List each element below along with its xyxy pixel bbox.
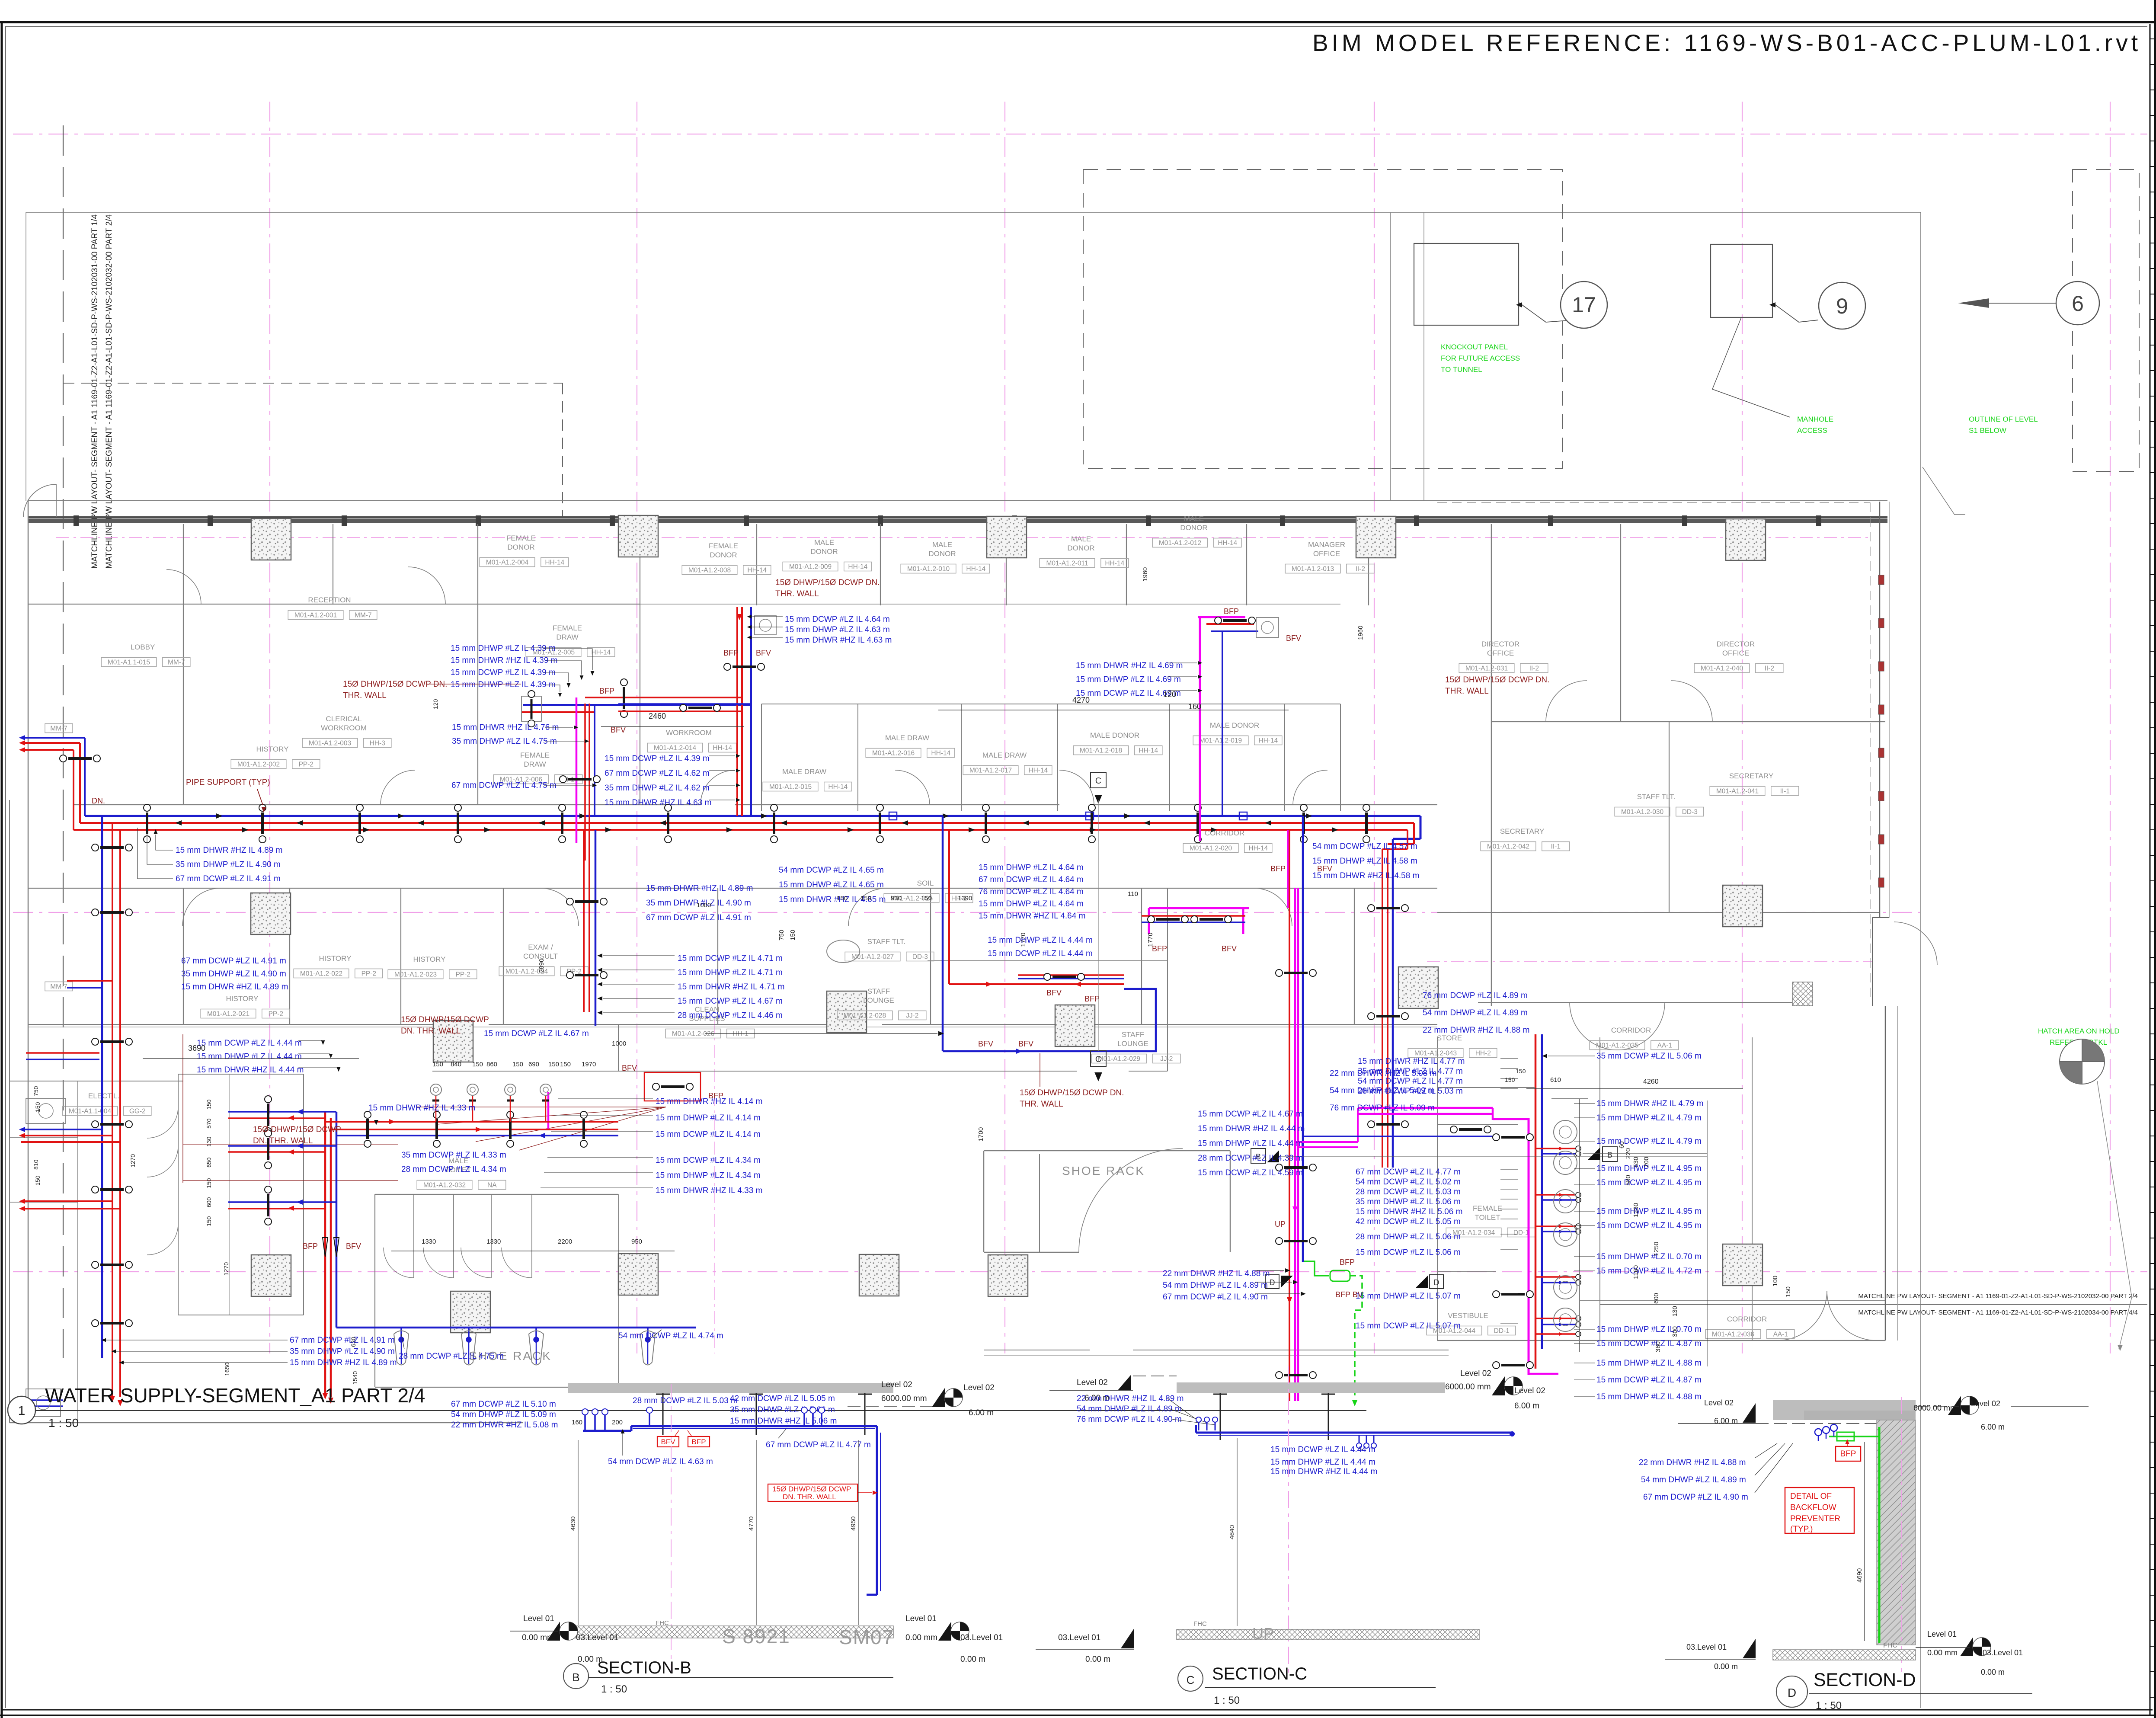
svg-text:STAFF: STAFF <box>867 987 890 995</box>
svg-text:15 mm DCWP #LZ IL 5.07 m: 15 mm DCWP #LZ IL 5.07 m <box>1356 1321 1461 1331</box>
svg-text:1770: 1770 <box>1020 933 1027 947</box>
svg-text:ELECT'L.: ELECT'L. <box>88 1092 119 1100</box>
svg-text:2890: 2890 <box>538 959 545 973</box>
svg-text:SECTION-D: SECTION-D <box>1814 1670 1916 1690</box>
svg-text:C: C <box>1095 776 1101 786</box>
svg-text:28 mm DCWP #LZ IL 5.03 m: 28 mm DCWP #LZ IL 5.03 m <box>1356 1187 1461 1197</box>
svg-text:BFP: BFP <box>1270 864 1286 873</box>
svg-text:HH-14: HH-14 <box>1139 747 1158 754</box>
svg-text:OFFICE: OFFICE <box>1722 649 1749 657</box>
svg-text:1700: 1700 <box>977 1127 985 1142</box>
svg-text:15 mm DHWP #LZ IL 4.79 m: 15 mm DHWP #LZ IL 4.79 m <box>1596 1113 1702 1123</box>
svg-text:4690: 4690 <box>1856 1568 1863 1583</box>
svg-text:MM-7: MM-7 <box>50 725 67 732</box>
svg-text:1540: 1540 <box>352 1371 358 1385</box>
svg-text:DONOR: DONOR <box>810 547 838 556</box>
svg-text:150: 150 <box>205 1099 212 1110</box>
svg-text:300: 300 <box>1671 1326 1679 1337</box>
svg-text:15 mm DCWP #LZ IL 5.06 m: 15 mm DCWP #LZ IL 5.06 m <box>1356 1248 1461 1257</box>
svg-text:M01-A1.2-015: M01-A1.2-015 <box>769 783 812 790</box>
svg-text:M01-A1.2-013: M01-A1.2-013 <box>1292 565 1334 573</box>
svg-text:RECEPTION: RECEPTION <box>308 596 351 604</box>
svg-text:15 mm DHWR #HZ IL 4.89 m: 15 mm DHWR #HZ IL 4.89 m <box>181 982 288 992</box>
svg-text:15 mm DCWP #LZ IL 4.67 m: 15 mm DCWP #LZ IL 4.67 m <box>484 1029 589 1038</box>
svg-text:6.00 m: 6.00 m <box>1514 1401 1539 1411</box>
svg-text:15Ø DHWP/15Ø DCWP: 15Ø DHWP/15Ø DCWP <box>253 1125 341 1134</box>
svg-text:35 mm DHWP #LZ IL 4.77 m: 35 mm DHWP #LZ IL 4.77 m <box>1358 1067 1463 1076</box>
svg-text:HH-14: HH-14 <box>747 566 767 574</box>
svg-text:KNOCKOUT PANEL: KNOCKOUT PANEL <box>1441 343 1508 351</box>
svg-text:1770: 1770 <box>1147 933 1154 947</box>
svg-text:35 mm DHWP #LZ IL 4.90 m: 35 mm DHWP #LZ IL 4.90 m <box>176 860 281 869</box>
svg-text:930: 930 <box>891 895 902 902</box>
svg-text:54 mm DHWP #LZ IL 5.09 m: 54 mm DHWP #LZ IL 5.09 m <box>451 1410 556 1419</box>
svg-text:67 mm DCWP #LZ IL 4.91 m: 67 mm DCWP #LZ IL 4.91 m <box>290 1336 395 1345</box>
svg-text:BFV: BFV <box>622 1064 637 1072</box>
svg-text:Level 01: Level 01 <box>1927 1630 1957 1638</box>
svg-text:4640: 4640 <box>1228 1525 1236 1539</box>
svg-text:MALE: MALE <box>1184 515 1204 523</box>
svg-text:SECRETARY: SECRETARY <box>1500 827 1544 835</box>
svg-text:PP-2: PP-2 <box>299 761 313 768</box>
svg-text:15 mm DHWR #HZ IL 4.14 m: 15 mm DHWR #HZ IL 4.14 m <box>656 1097 762 1106</box>
svg-text:76 mm DCWP #LZ IL 5.09 m: 76 mm DCWP #LZ IL 5.09 m <box>1330 1104 1435 1113</box>
svg-text:THR. WALL: THR. WALL <box>1020 1100 1063 1109</box>
svg-text:C: C <box>1187 1673 1195 1686</box>
svg-text:15 mm DHWP #LZ IL 4.64 m: 15 mm DHWP #LZ IL 4.64 m <box>979 899 1084 909</box>
svg-text:15Ø DHWP/15Ø DCWP DN.: 15Ø DHWP/15Ø DCWP DN. <box>1445 675 1549 685</box>
svg-text:DD-1: DD-1 <box>1494 1327 1510 1334</box>
svg-text:15 mm DHWR #HZ IL 4.64 m: 15 mm DHWR #HZ IL 4.64 m <box>979 912 1085 921</box>
svg-text:1960: 1960 <box>1142 567 1149 582</box>
svg-text:42 mm DCWP #LZ IL 5.05 m: 42 mm DCWP #LZ IL 5.05 m <box>730 1394 835 1403</box>
svg-text:15 mm DHWP #LZ IL 4.44 m: 15 mm DHWP #LZ IL 4.44 m <box>1198 1139 1303 1148</box>
svg-text:22 mm DHWR #HZ IL 5.08 m: 22 mm DHWR #HZ IL 5.08 m <box>451 1420 558 1430</box>
svg-text:FOR FUTURE ACCESS: FOR FUTURE ACCESS <box>1441 354 1520 362</box>
svg-text:200: 200 <box>612 1419 623 1426</box>
svg-text:MALE DONOR: MALE DONOR <box>1090 731 1139 739</box>
svg-text:150: 150 <box>789 930 797 941</box>
svg-text:35 mm DHWP #LZ IL 4.90 m: 35 mm DHWP #LZ IL 4.90 m <box>290 1347 395 1356</box>
svg-text:FHC: FHC <box>1883 1642 1897 1649</box>
svg-text:15 mm DHWR #HZ IL 5.06 m: 15 mm DHWR #HZ IL 5.06 m <box>1356 1207 1462 1216</box>
svg-text:76 mm DCWP #LZ IL 4.64 m: 76 mm DCWP #LZ IL 4.64 m <box>979 887 1084 896</box>
svg-text:PP-2: PP-2 <box>456 971 470 978</box>
svg-text:Level 02: Level 02 <box>1971 1399 2000 1408</box>
svg-text:15 mm DHWR #HZ IL 4.44 m: 15 mm DHWR #HZ IL 4.44 m <box>1270 1467 1377 1476</box>
svg-text:SM07: SM07 <box>839 1626 894 1648</box>
svg-text:570: 570 <box>205 1118 212 1129</box>
svg-text:ACCESS: ACCESS <box>1797 426 1827 435</box>
svg-text:FEMALE: FEMALE <box>520 751 550 759</box>
svg-text:M01-A1.2-022: M01-A1.2-022 <box>300 970 342 977</box>
svg-text:2200: 2200 <box>558 1238 572 1245</box>
svg-text:DN. THR. WALL: DN. THR. WALL <box>401 1027 461 1036</box>
svg-text:54 mm DHWP #LZ IL 4.89 m: 54 mm DHWP #LZ IL 4.89 m <box>1077 1404 1182 1414</box>
svg-text:6000.00 mm: 6000.00 mm <box>881 1394 927 1403</box>
svg-text:1000: 1000 <box>697 902 711 909</box>
svg-text:SECTION-B: SECTION-B <box>597 1658 691 1677</box>
svg-text:15 mm DHWP #LZ IL 4.65 m: 15 mm DHWP #LZ IL 4.65 m <box>779 880 884 889</box>
svg-text:3690: 3690 <box>188 1044 205 1053</box>
svg-text:35 mm DHWP #LZ IL 4.90 m: 35 mm DHWP #LZ IL 4.90 m <box>181 969 286 979</box>
svg-text:690: 690 <box>528 1061 539 1068</box>
svg-text:(TYP.): (TYP.) <box>1790 1525 1813 1534</box>
svg-text:1330: 1330 <box>486 1238 501 1245</box>
svg-text:1160: 1160 <box>1632 1265 1640 1279</box>
svg-text:28 mm DCWP #LZ IL 4.39 m: 28 mm DCWP #LZ IL 4.39 m <box>1198 1154 1303 1163</box>
svg-text:MM-7: MM-7 <box>50 983 67 990</box>
svg-text:BFP: BFP <box>1840 1449 1856 1459</box>
svg-text:15Ø DHWP/15Ø DCWP: 15Ø DHWP/15Ø DCWP <box>772 1485 851 1493</box>
svg-text:67 mm DCWP #LZ IL 4.90 m: 67 mm DCWP #LZ IL 4.90 m <box>1643 1493 1748 1502</box>
svg-text:HISTORY: HISTORY <box>319 954 352 963</box>
svg-text:610: 610 <box>1550 1076 1561 1084</box>
svg-text:BIM MODEL REFERENCE: 1169-WS-B: BIM MODEL REFERENCE: 1169-WS-B01-ACC-PLU… <box>1312 29 2141 56</box>
svg-text:M01-A1.2-021: M01-A1.2-021 <box>207 1010 250 1017</box>
svg-text:BFV: BFV <box>1286 634 1301 643</box>
svg-text:15 mm DHWP #LZ IL 4.63 m: 15 mm DHWP #LZ IL 4.63 m <box>785 625 890 634</box>
svg-text:15 mm DHWP #LZ IL 4.95 m: 15 mm DHWP #LZ IL 4.95 m <box>1596 1207 1702 1216</box>
svg-text:15 mm DHWR #HZ IL 4.89 m: 15 mm DHWR #HZ IL 4.89 m <box>176 846 282 855</box>
svg-text:MALE: MALE <box>932 541 952 549</box>
svg-text:FEMALE: FEMALE <box>1473 1204 1502 1213</box>
svg-text:03.Level 01: 03.Level 01 <box>576 1633 618 1642</box>
svg-text:03.Level 01: 03.Level 01 <box>1686 1643 1727 1651</box>
svg-text:PP-2: PP-2 <box>361 970 376 977</box>
svg-text:42 mm DCWP #LZ IL 5.05 m: 42 mm DCWP #LZ IL 5.05 m <box>1356 1217 1461 1226</box>
svg-text:M01-A1.2-004: M01-A1.2-004 <box>486 559 529 566</box>
svg-text:DIRECTOR: DIRECTOR <box>1481 640 1519 648</box>
svg-text:BFP: BFP <box>723 649 739 657</box>
svg-text:UP: UP <box>1252 1625 1274 1642</box>
svg-text:67 mm DCWP #LZ IL 4.77 m: 67 mm DCWP #LZ IL 4.77 m <box>766 1440 871 1449</box>
svg-text:15 mm DHWR #HZ IL 4.89 m: 15 mm DHWR #HZ IL 4.89 m <box>646 884 753 893</box>
svg-text:MM-7: MM-7 <box>355 611 372 619</box>
svg-text:STAFF: STAFF <box>1122 1030 1145 1039</box>
svg-text:OUTLINE OF LEVEL: OUTLINE OF LEVEL <box>1969 415 2038 423</box>
svg-text:67 mm DCWP #LZ IL 4.62 m: 67 mm DCWP #LZ IL 4.62 m <box>605 769 710 778</box>
svg-text:150: 150 <box>1516 1068 1526 1075</box>
svg-text:HH-3: HH-3 <box>370 739 385 747</box>
svg-text:160: 160 <box>1188 702 1201 711</box>
svg-text:MALE DONOR: MALE DONOR <box>1210 721 1259 729</box>
svg-text:BFV: BFV <box>1046 989 1062 997</box>
svg-text:28 mm DCWP #LZ IL 4.75 m: 28 mm DCWP #LZ IL 4.75 m <box>399 1352 504 1361</box>
svg-text:FHC: FHC <box>656 1619 669 1627</box>
svg-text:840: 840 <box>451 1061 461 1068</box>
svg-text:M01-A1.2-023: M01-A1.2-023 <box>394 971 437 978</box>
svg-text:WORKROOM: WORKROOM <box>666 729 712 737</box>
svg-text:HH-14: HH-14 <box>931 749 950 757</box>
svg-text:AA-1: AA-1 <box>1773 1331 1788 1338</box>
svg-text:2460: 2460 <box>649 712 666 720</box>
svg-text:54 mm DCWP #LZ IL 5.02 m: 54 mm DCWP #LZ IL 5.02 m <box>1356 1177 1461 1187</box>
svg-text:CORRIDOR: CORRIDOR <box>1727 1315 1767 1323</box>
svg-text:22 mm DHWR #HZ IL 4.88 m: 22 mm DHWR #HZ IL 4.88 m <box>1639 1458 1746 1467</box>
svg-text:15 mm DCWP #LZ IL 4.72 m: 15 mm DCWP #LZ IL 4.72 m <box>1596 1267 1702 1276</box>
svg-text:HH-14: HH-14 <box>1105 560 1124 567</box>
svg-text:15 mm DHWR #HZ IL 4.33 m: 15 mm DHWR #HZ IL 4.33 m <box>368 1104 475 1113</box>
svg-text:M01-A1.2-042: M01-A1.2-042 <box>1487 843 1529 850</box>
svg-text:4770: 4770 <box>748 1516 755 1531</box>
svg-text:150: 150 <box>921 895 932 902</box>
svg-text:THR. WALL: THR. WALL <box>775 589 819 598</box>
svg-text:MATCHLINE PW LAYOUT- SEGMENT -: MATCHLINE PW LAYOUT- SEGMENT - A1 1169-0… <box>90 214 99 569</box>
svg-text:15 mm DHWP #LZ IL 4.44 m: 15 mm DHWP #LZ IL 4.44 m <box>988 936 1093 945</box>
svg-text:15 mm DCWP #LZ IL 4.59 m: 15 mm DCWP #LZ IL 4.59 m <box>1198 1168 1303 1177</box>
svg-text:M01-A1.2-029: M01-A1.2-029 <box>1098 1055 1140 1062</box>
svg-text:22 mm DHWR #HZ IL 4.88 m: 22 mm DHWR #HZ IL 4.88 m <box>1423 1026 1529 1035</box>
svg-text:15 mm DHWR #HZ IL 4.71 m: 15 mm DHWR #HZ IL 4.71 m <box>678 982 784 992</box>
svg-text:HH-14: HH-14 <box>1258 737 1278 744</box>
svg-text:35 mm DCWP #LZ IL 5.06 m: 35 mm DCWP #LZ IL 5.06 m <box>1596 1052 1702 1061</box>
svg-text:HH-14: HH-14 <box>1248 845 1268 852</box>
svg-text:FEMALE: FEMALE <box>709 542 738 550</box>
svg-text:4950: 4950 <box>850 1516 857 1531</box>
svg-text:BFV: BFV <box>611 726 626 734</box>
svg-text:15 mm DCWP #LZ IL 4.44 m: 15 mm DCWP #LZ IL 4.44 m <box>197 1039 302 1048</box>
svg-text:1650: 1650 <box>224 1363 230 1376</box>
svg-text:MALE DRAW: MALE DRAW <box>885 734 929 742</box>
svg-text:60: 60 <box>1618 1141 1625 1149</box>
svg-text:MATCHLINE PW LAYOUT- SEGMENT -: MATCHLINE PW LAYOUT- SEGMENT - A1 1169-0… <box>105 214 114 569</box>
svg-text:1250: 1250 <box>1653 1242 1660 1256</box>
svg-text:530: 530 <box>1632 1157 1640 1168</box>
svg-text:DD-3: DD-3 <box>1682 808 1698 816</box>
svg-text:M01-A1.2-031: M01-A1.2-031 <box>1465 665 1508 672</box>
svg-text:CORRIDOR: CORRIDOR <box>1611 1026 1651 1034</box>
svg-text:15 mm DHWR #HZ IL 4.89 m: 15 mm DHWR #HZ IL 4.89 m <box>290 1358 397 1367</box>
svg-text:6.00 m: 6.00 m <box>1981 1423 2005 1431</box>
svg-text:B: B <box>572 1671 579 1684</box>
svg-text:54 mm DCWP #LZ IL 4.63 m: 54 mm DCWP #LZ IL 4.63 m <box>608 1457 713 1466</box>
svg-text:FHC: FHC <box>1193 1620 1207 1628</box>
svg-text:II-1: II-1 <box>1551 843 1561 850</box>
svg-text:0.00 m: 0.00 m <box>1085 1655 1110 1664</box>
svg-text:MALE: MALE <box>814 538 834 547</box>
svg-text:15Ø DHWP/15Ø DCWP: 15Ø DHWP/15Ø DCWP <box>401 1015 489 1024</box>
svg-text:HATCH AREA ON HOLD: HATCH AREA ON HOLD <box>2038 1027 2120 1035</box>
svg-text:SHOE RACK: SHOE RACK <box>1062 1164 1145 1177</box>
svg-text:1390: 1390 <box>958 895 972 902</box>
svg-text:950: 950 <box>631 1238 642 1245</box>
svg-text:1960: 1960 <box>1357 626 1364 640</box>
svg-text:M01-A1.2-019: M01-A1.2-019 <box>1200 737 1242 744</box>
svg-text:1 : 50: 1 : 50 <box>601 1683 627 1695</box>
svg-text:M01-A1.2-017: M01-A1.2-017 <box>969 767 1012 774</box>
svg-text:150: 150 <box>205 1178 212 1188</box>
svg-text:6.00 m: 6.00 m <box>1714 1417 1738 1425</box>
svg-text:54 mm DCWP #LZ IL 4.77 m: 54 mm DCWP #LZ IL 4.77 m <box>1358 1077 1463 1086</box>
svg-text:150: 150 <box>34 1102 41 1112</box>
svg-text:28 mm DCWP #LZ IL 5.03 m: 28 mm DCWP #LZ IL 5.03 m <box>1358 1087 1463 1096</box>
svg-text:SECTION-C: SECTION-C <box>1212 1664 1307 1683</box>
svg-text:35 mm DHWP #LZ IL 5.06 m: 35 mm DHWP #LZ IL 5.06 m <box>1356 1197 1461 1206</box>
svg-text:EXAM /: EXAM / <box>528 943 553 951</box>
svg-text:54 mm DCWP #LZ IL 4.65 m: 54 mm DCWP #LZ IL 4.65 m <box>779 866 884 875</box>
svg-text:HH-2: HH-2 <box>1475 1049 1491 1057</box>
svg-text:120: 120 <box>432 699 439 709</box>
svg-text:15 mm DCWP #LZ IL 4.44 m: 15 mm DCWP #LZ IL 4.44 m <box>1270 1445 1375 1454</box>
svg-text:DONOR: DONOR <box>507 543 534 551</box>
svg-text:Level 02: Level 02 <box>1704 1398 1734 1407</box>
svg-text:HISTORY: HISTORY <box>413 955 446 963</box>
svg-text:67 mm DCWP #LZ IL 4.77 m: 67 mm DCWP #LZ IL 4.77 m <box>1356 1168 1461 1177</box>
svg-text:CLERICAL: CLERICAL <box>326 715 361 723</box>
svg-text:1970: 1970 <box>582 1061 596 1068</box>
svg-text:200: 200 <box>1643 1157 1650 1168</box>
svg-text:SECRETARY: SECRETARY <box>1729 772 1773 780</box>
svg-text:HH-14: HH-14 <box>591 649 611 656</box>
svg-text:STORE: STORE <box>1437 1034 1462 1042</box>
svg-text:BFV: BFV <box>756 649 771 657</box>
svg-text:28 mm DCWP #LZ IL 4.46 m: 28 mm DCWP #LZ IL 4.46 m <box>678 1011 783 1020</box>
svg-text:15Ø DHWP/15Ø DCWP DN.: 15Ø DHWP/15Ø DCWP DN. <box>775 578 880 587</box>
svg-text:28 mm DCWP #LZ IL 4.34 m: 28 mm DCWP #LZ IL 4.34 m <box>401 1165 506 1174</box>
svg-text:M01-A1.2-002: M01-A1.2-002 <box>237 761 280 768</box>
svg-text:15 mm DCWP #LZ IL 4.67 m: 15 mm DCWP #LZ IL 4.67 m <box>1198 1110 1303 1119</box>
svg-text:54 mm DHWP #LZ IL 4.89 m: 54 mm DHWP #LZ IL 4.89 m <box>1163 1281 1268 1290</box>
svg-text:15 mm DCWP #LZ IL 4.39 m: 15 mm DCWP #LZ IL 4.39 m <box>451 668 556 677</box>
svg-text:650: 650 <box>205 1157 212 1168</box>
svg-text:0.00 m: 0.00 m <box>960 1655 985 1664</box>
svg-text:B: B <box>1607 1151 1612 1159</box>
svg-text:15 mm DHWR #HZ IL 4.69 m: 15 mm DHWR #HZ IL 4.69 m <box>1076 661 1183 670</box>
svg-text:15 mm DHWP #LZ IL 4.71 m: 15 mm DHWP #LZ IL 4.71 m <box>678 968 783 977</box>
svg-text:150: 150 <box>205 1216 212 1226</box>
svg-text:15 mm DCWP #LZ IL 4.39 m: 15 mm DCWP #LZ IL 4.39 m <box>605 754 710 763</box>
svg-text:03.Level 01: 03.Level 01 <box>1983 1648 2023 1657</box>
svg-text:THR. WALL: THR. WALL <box>1445 687 1489 696</box>
svg-text:BFP: BFP <box>303 1242 318 1251</box>
svg-text:15 mm DCWP #LZ IL 4.95 m: 15 mm DCWP #LZ IL 4.95 m <box>1596 1178 1702 1187</box>
svg-text:M01-A1.1-004: M01-A1.1-004 <box>69 1107 112 1115</box>
svg-text:15 mm DHWR #HZ IL 4.44 m: 15 mm DHWR #HZ IL 4.44 m <box>197 1065 304 1075</box>
svg-text:15 mm DCWP #LZ IL 4.14 m: 15 mm DCWP #LZ IL 4.14 m <box>656 1130 761 1139</box>
svg-text:M01-A1.1-015: M01-A1.1-015 <box>108 659 150 666</box>
svg-text:15 mm DHWP #LZ IL 4.44 m: 15 mm DHWP #LZ IL 4.44 m <box>1270 1458 1375 1467</box>
svg-text:MANHOLE: MANHOLE <box>1797 415 1833 423</box>
svg-text:03.Level 01: 03.Level 01 <box>1058 1633 1100 1642</box>
svg-text:150: 150 <box>860 895 871 902</box>
svg-text:15 mm DCWP #LZ IL 4.71 m: 15 mm DCWP #LZ IL 4.71 m <box>678 954 783 963</box>
svg-text:DN. THR. WALL: DN. THR. WALL <box>783 1493 836 1501</box>
svg-text:HISTORY: HISTORY <box>256 745 289 753</box>
svg-text:M01-A1.2-028: M01-A1.2-028 <box>844 1012 886 1019</box>
svg-text:M01-A1.2-020: M01-A1.2-020 <box>1190 845 1232 852</box>
svg-text:JJ-2: JJ-2 <box>1160 1055 1173 1062</box>
svg-text:BFP: BFP <box>1224 607 1239 616</box>
svg-text:0.00 m: 0.00 m <box>1714 1662 1738 1671</box>
svg-text:630: 630 <box>350 1337 357 1347</box>
svg-text:28 mm DHWP #LZ IL 5.06 m: 28 mm DHWP #LZ IL 5.06 m <box>1356 1232 1461 1241</box>
svg-text:150: 150 <box>1505 1076 1515 1083</box>
svg-text:M01-A1.2-018: M01-A1.2-018 <box>1080 747 1122 754</box>
svg-text:1 : 50: 1 : 50 <box>1816 1700 1842 1712</box>
svg-text:15 mm DHWR #HZ IL 4.39 m: 15 mm DHWR #HZ IL 4.39 m <box>451 656 557 665</box>
svg-text:PIPE SUPPORT (TYP): PIPE SUPPORT (TYP) <box>186 778 270 787</box>
svg-text:150: 150 <box>560 1061 571 1068</box>
svg-text:STAFF TLT.: STAFF TLT. <box>1637 793 1676 801</box>
svg-text:220: 220 <box>1625 1148 1632 1159</box>
svg-text:4270: 4270 <box>1072 696 1090 704</box>
svg-text:150: 150 <box>548 1061 559 1068</box>
svg-text:Level 02: Level 02 <box>963 1383 995 1392</box>
svg-text:76 mm DCWP #LZ IL 4.89 m: 76 mm DCWP #LZ IL 4.89 m <box>1423 991 1528 1000</box>
svg-text:LOUNGE: LOUNGE <box>863 996 894 1005</box>
svg-text:15 mm DHWR #HZ IL 4.63 m: 15 mm DHWR #HZ IL 4.63 m <box>605 798 711 807</box>
svg-text:HH-14: HH-14 <box>828 783 848 790</box>
svg-text:15 mm DHWR #HZ IL 4.63 m: 15 mm DHWR #HZ IL 4.63 m <box>785 636 892 645</box>
svg-text:MALE DRAW: MALE DRAW <box>782 768 826 776</box>
svg-text:6000.00 mm: 6000.00 mm <box>1913 1404 1957 1412</box>
svg-text:15 mm DHWP #LZ IL 0.70 m: 15 mm DHWP #LZ IL 0.70 m <box>1596 1252 1702 1261</box>
svg-text:HH-14: HH-14 <box>713 744 732 752</box>
svg-text:WATER SUPPLY-SEGMENT_A1 PART 2: WATER SUPPLY-SEGMENT_A1 PART 2/4 <box>45 1384 425 1407</box>
svg-text:JJ-2: JJ-2 <box>906 1012 918 1019</box>
svg-text:380: 380 <box>1654 1341 1662 1352</box>
svg-text:MM-7: MM-7 <box>168 659 185 666</box>
svg-text:HH-14: HH-14 <box>848 563 867 570</box>
svg-text:DONOR: DONOR <box>1067 544 1094 552</box>
svg-text:DONOR: DONOR <box>710 551 737 559</box>
svg-text:PP-2: PP-2 <box>269 1010 283 1017</box>
svg-text:MALE: MALE <box>1071 535 1091 543</box>
svg-text:BFP: BFP <box>1084 995 1100 1003</box>
svg-text:D: D <box>1788 1686 1796 1699</box>
svg-text:AA-1: AA-1 <box>1657 1042 1672 1049</box>
svg-text:M01-A1.2-026: M01-A1.2-026 <box>672 1030 714 1037</box>
svg-text:M01-A1.2-035: M01-A1.2-035 <box>1596 1042 1638 1049</box>
svg-text:OFFICE: OFFICE <box>1313 550 1340 558</box>
svg-text:6000.00 mm: 6000.00 mm <box>1445 1382 1491 1392</box>
svg-text:15 mm DHWR #HZ IL 4.76 m: 15 mm DHWR #HZ IL 4.76 m <box>452 723 559 732</box>
svg-text:1330: 1330 <box>422 1238 436 1245</box>
svg-text:600: 600 <box>205 1197 212 1207</box>
svg-text:120: 120 <box>1163 690 1176 699</box>
svg-text:15 mm DHWR #HZ IL 4.33 m: 15 mm DHWR #HZ IL 4.33 m <box>656 1186 762 1195</box>
svg-text:MATCHLINE PW LAYOUT- SEGMENT -: MATCHLINE PW LAYOUT- SEGMENT - A1 1169-0… <box>1858 1292 2138 1300</box>
svg-text:DONOR: DONOR <box>928 550 956 558</box>
svg-text:D: D <box>1434 1278 1439 1287</box>
svg-text:M01-A1.2-003: M01-A1.2-003 <box>309 739 351 747</box>
svg-text:FEMALE: FEMALE <box>506 534 536 542</box>
svg-text:15 mm DHWP #LZ IL 4.88 m: 15 mm DHWP #LZ IL 4.88 m <box>1596 1359 1702 1368</box>
svg-text:17: 17 <box>1572 293 1596 317</box>
svg-text:15 mm DCWP #LZ IL 4.87 m: 15 mm DCWP #LZ IL 4.87 m <box>1596 1376 1702 1385</box>
svg-text:15 mm DHWP #LZ IL 4.34 m: 15 mm DHWP #LZ IL 4.34 m <box>656 1171 761 1180</box>
svg-text:M01-A1.2-032: M01-A1.2-032 <box>423 1181 466 1189</box>
svg-text:BFV: BFV <box>978 1040 993 1048</box>
svg-text:FEMALE: FEMALE <box>553 624 582 632</box>
svg-text:28 mm DCWP #LZ IL 5.03 m: 28 mm DCWP #LZ IL 5.03 m <box>633 1396 738 1405</box>
svg-text:1 : 50: 1 : 50 <box>48 1416 79 1430</box>
svg-text:TOILET: TOILET <box>1475 1213 1500 1222</box>
svg-text:PREVENTER: PREVENTER <box>1790 1514 1840 1523</box>
svg-text:Level 02: Level 02 <box>1460 1369 1491 1378</box>
svg-text:67 mm DCWP #LZ IL 5.10 m: 67 mm DCWP #LZ IL 5.10 m <box>451 1400 556 1409</box>
svg-text:M01-A1.2-010: M01-A1.2-010 <box>907 565 950 573</box>
svg-text:1000: 1000 <box>612 1040 626 1047</box>
svg-text:600: 600 <box>1653 1293 1660 1304</box>
svg-text:DN.: DN. <box>92 797 105 805</box>
svg-text:15 mm DCWP #LZ IL 4.95 m: 15 mm DCWP #LZ IL 4.95 m <box>1596 1221 1702 1230</box>
svg-text:15 mm DHWP #LZ IL 0.70 m: 15 mm DHWP #LZ IL 0.70 m <box>1596 1325 1702 1334</box>
svg-text:150: 150 <box>34 1175 41 1186</box>
svg-text:HH-14: HH-14 <box>1028 767 1048 774</box>
svg-text:BFV: BFV <box>346 1242 361 1251</box>
